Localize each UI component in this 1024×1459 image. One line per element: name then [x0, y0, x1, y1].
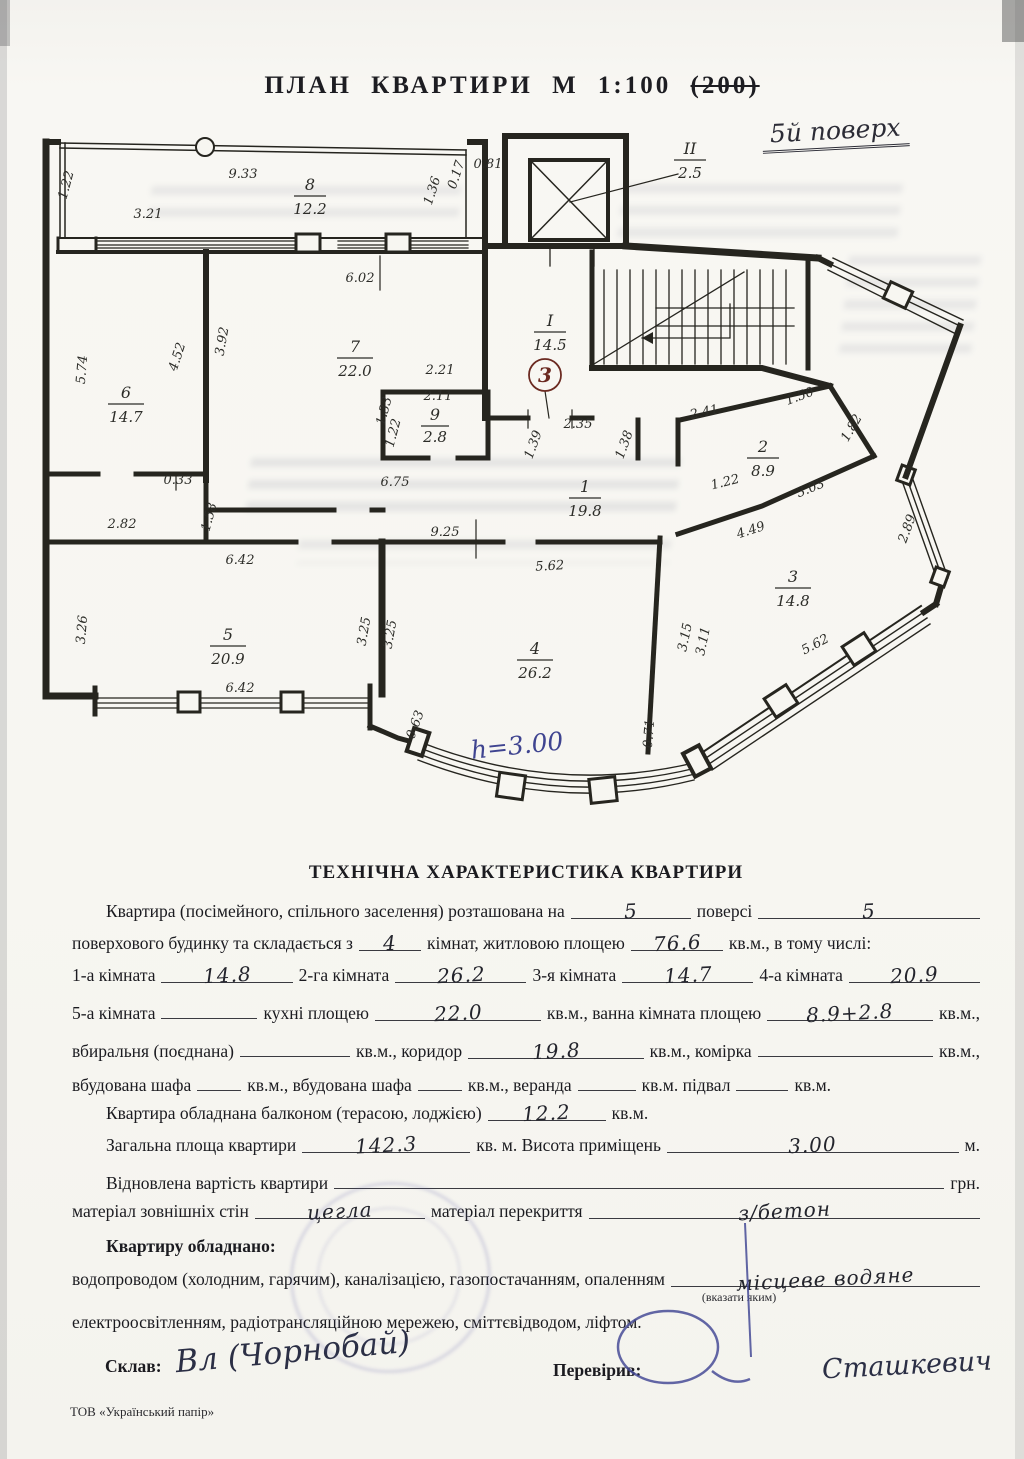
scan-edge-left — [0, 0, 7, 1459]
basement-field — [736, 1070, 788, 1091]
svg-text:I: I — [546, 311, 554, 330]
label: вбиральня (поєднана) — [72, 1041, 234, 1062]
svg-text:3.25: 3.25 — [355, 616, 375, 647]
storeys-field: 5 — [758, 898, 980, 919]
svg-text:9.25: 9.25 — [431, 525, 460, 540]
svg-text:19.8: 19.8 — [568, 502, 601, 520]
stair-label: I 14.5 — [533, 311, 566, 354]
svg-text:1.22: 1.22 — [56, 169, 78, 201]
height-note-handwritten: h=3.00 — [469, 726, 564, 765]
label: кв.м. підвал — [642, 1075, 731, 1096]
handwritten-value: 3.00 — [788, 1132, 838, 1159]
svg-text:2.89: 2.89 — [895, 513, 919, 546]
svg-text:1: 1 — [580, 477, 590, 496]
label: Квартира обладнана балконом (терасою, ло… — [106, 1103, 482, 1124]
handwritten-value: 14.7 — [663, 962, 713, 989]
label: кв.м., — [939, 1003, 980, 1024]
svg-text:2.41: 2.41 — [688, 402, 720, 423]
room-label-8: 8 12.2 — [293, 175, 326, 218]
label: 4-а кімната — [759, 965, 842, 986]
label: кв.м., коридор — [356, 1041, 462, 1062]
made-by-label: Склав: — [105, 1356, 162, 1377]
entrance-number-mark: 3 — [529, 359, 561, 391]
form-line-balcony: Квартира обладнана балконом (терасою, ло… — [72, 1100, 980, 1124]
label: Відновлена вартість квартири — [106, 1173, 328, 1194]
room-label-2: 2 8.9 — [747, 437, 779, 480]
label: м. — [965, 1135, 980, 1156]
balcony-railing — [60, 138, 466, 238]
handwritten-value: 12.2 — [522, 1100, 572, 1127]
svg-text:6: 6 — [121, 383, 131, 402]
svg-text:5.74: 5.74 — [74, 355, 91, 385]
handwritten-value: 8.9+2.8 — [806, 999, 895, 1028]
room4-area-field: 20.9 — [849, 962, 980, 983]
svg-text:3.21: 3.21 — [134, 207, 163, 222]
interior-walls — [46, 252, 874, 752]
label: кімнат, житловою площею — [427, 933, 625, 954]
wc-area-field — [240, 1036, 350, 1057]
svg-text:26.2: 26.2 — [517, 664, 551, 682]
form-line-kitchen-bath: 5-а кімната кухні площею 22.0 кв.м., ван… — [72, 998, 980, 1024]
svg-text:0.81: 0.81 — [474, 157, 503, 172]
label: кв.м., ванна кімната площею — [547, 1003, 761, 1024]
label: поверхового будинку та складається з — [72, 933, 353, 954]
handwritten-value: 76.6 — [652, 930, 702, 957]
ink-stamp-inner-ring — [308, 1198, 470, 1355]
svg-text:12.2: 12.2 — [293, 200, 326, 218]
svg-text:6.42: 6.42 — [226, 681, 255, 696]
svg-text:3: 3 — [538, 363, 552, 387]
label: кв.м., — [939, 1041, 980, 1062]
pen-marks — [520, 1195, 820, 1405]
svg-text:6.75: 6.75 — [381, 475, 410, 490]
paper-vendor-note: ТОВ «Український папір» — [70, 1404, 214, 1420]
svg-text:2.21: 2.21 — [425, 363, 455, 378]
scanned-document-sheet: ПЛАН КВАРТИРИ М 1:100 (200) 5й поверх — [0, 0, 1024, 1459]
label: матеріал зовнішніх стін — [72, 1201, 249, 1222]
room-label-4: 4 26.2 — [517, 639, 553, 682]
svg-text:1.39: 1.39 — [522, 429, 546, 461]
svg-text:7: 7 — [350, 337, 361, 356]
svg-text:22.0: 22.0 — [337, 362, 372, 380]
label: 1-а кімната — [72, 965, 155, 986]
room5-area-field — [161, 998, 257, 1019]
form-line-restored-value: Відновлена вартість квартири грн. — [72, 1168, 980, 1194]
form-line-wc-corridor: вбиральня (поєднана) кв.м., коридор 19.8… — [72, 1036, 980, 1062]
checked-by-signature: Сташкевич — [821, 1346, 992, 1386]
label: кв. м. Висота приміщень — [476, 1135, 661, 1156]
svg-text:2.35: 2.35 — [563, 417, 593, 432]
stairwell — [592, 246, 830, 386]
room-label-6: 6 14.7 — [108, 383, 144, 426]
label: Квартира (посімейного, спільного заселен… — [106, 901, 565, 922]
label: грн. — [950, 1173, 980, 1194]
room-labels: 8 12.2 7 22.0 6 14.7 9 2.8 5 — [108, 139, 811, 765]
svg-text:6.02: 6.02 — [346, 271, 375, 286]
svg-text:2.82: 2.82 — [107, 517, 137, 532]
label: кв.м. — [612, 1103, 649, 1124]
top-window-wall — [58, 234, 485, 290]
svg-text:14.5: 14.5 — [533, 336, 566, 354]
handwritten-value: 20.9 — [890, 962, 940, 989]
kitchen-area-field: 22.0 — [375, 1000, 541, 1021]
label: Загальна площа квартири — [106, 1135, 296, 1156]
closet1-field — [197, 1070, 241, 1091]
svg-text:4: 4 — [529, 639, 540, 658]
room-label-1: 1 19.8 — [568, 477, 601, 520]
label: кв.м., в тому числі: — [729, 933, 871, 954]
svg-text:0.17: 0.17 — [445, 158, 468, 191]
svg-text:3.15: 3.15 — [675, 622, 696, 653]
scan-edge-right — [1015, 0, 1024, 1459]
svg-text:20.9: 20.9 — [210, 650, 245, 668]
svg-text:1.36: 1.36 — [421, 175, 444, 207]
svg-text:2.5: 2.5 — [677, 164, 702, 182]
scan-corner-top-left — [0, 0, 10, 46]
plan-title-struck-scale: (200) — [691, 72, 760, 99]
form-line-total-area: Загальна площа квартири 142.3 кв. м. Вис… — [72, 1132, 980, 1156]
svg-text:9: 9 — [430, 405, 440, 424]
svg-text:5.62: 5.62 — [535, 558, 565, 574]
handwritten-value: 14.8 — [202, 962, 252, 989]
elevator-label: II 2.5 — [674, 139, 706, 182]
svg-text:3.11: 3.11 — [693, 626, 714, 657]
label: кв.м., веранда — [468, 1075, 572, 1096]
svg-text:3.26: 3.26 — [74, 615, 91, 645]
svg-text:0.71: 0.71 — [641, 719, 658, 749]
handwritten-value: 26.2 — [436, 962, 486, 989]
svg-text:1.22: 1.22 — [709, 472, 741, 494]
room1-area-field: 14.8 — [161, 962, 292, 983]
svg-text:9.33: 9.33 — [229, 167, 258, 182]
label: кв.м., вбудована шафа — [247, 1075, 412, 1096]
handwritten-value: 22.0 — [433, 1000, 483, 1027]
room-label-3: 3 14.8 — [775, 567, 811, 610]
svg-text:1.50: 1.50 — [784, 385, 816, 409]
form-heading: ТЕХНІЧНА ХАРАКТЕРИСТИКА КВАРТИРИ — [72, 862, 980, 884]
room-label-9: 9 2.8 — [421, 405, 449, 446]
restored-value-field — [334, 1168, 944, 1189]
form-line-closets: вбудована шафа кв.м., вбудована шафа кв.… — [72, 1070, 980, 1096]
svg-text:1.38: 1.38 — [613, 429, 637, 461]
room-label-7: 7 22.0 — [337, 337, 373, 380]
svg-text:3: 3 — [788, 567, 798, 586]
svg-text:2.8: 2.8 — [422, 428, 447, 446]
handwritten-value: 142.3 — [355, 1131, 418, 1158]
svg-text:3.92: 3.92 — [213, 326, 233, 357]
form-line-rooms-count: поверхового будинку та складається з 4 к… — [72, 930, 980, 954]
svg-text:4.49: 4.49 — [734, 519, 767, 543]
svg-text:3.03: 3.03 — [794, 476, 826, 501]
bathroom-area-field: 8.9+2.8 — [767, 1000, 933, 1021]
floor-field: 5 — [571, 898, 691, 919]
handwritten-value: 19.8 — [531, 1038, 581, 1065]
room3-area-field: 14.7 — [622, 962, 753, 983]
svg-text:5: 5 — [223, 625, 233, 644]
label: кв.м. — [794, 1075, 831, 1096]
handwritten-value: 5 — [623, 899, 638, 924]
total-area-field: 142.3 — [302, 1132, 470, 1153]
handwritten-value: 4 — [383, 931, 398, 956]
svg-text:14.8: 14.8 — [776, 592, 809, 610]
svg-text:8.9: 8.9 — [751, 462, 775, 480]
svg-text:5.62: 5.62 — [799, 631, 832, 658]
svg-text:1.58: 1.58 — [199, 501, 221, 533]
corridor-area-field: 19.8 — [468, 1038, 643, 1059]
storeroom-area-field — [758, 1036, 933, 1057]
page-title: ПЛАН КВАРТИРИ М 1:100 (200) — [0, 72, 1024, 100]
label: кв.м., комірка — [650, 1041, 752, 1062]
rooms-count-field: 4 — [359, 930, 421, 951]
svg-text:4.52: 4.52 — [166, 341, 190, 374]
living-area-field: 76.6 — [631, 930, 723, 951]
form-line-location: Квартира (посімейного, спільного заселен… — [72, 898, 980, 922]
svg-text:2.11: 2.11 — [423, 389, 453, 404]
scan-corner-top-right — [1002, 0, 1024, 42]
svg-text:2: 2 — [757, 437, 768, 456]
room2-area-field: 26.2 — [395, 962, 526, 983]
svg-text:II: II — [683, 139, 697, 158]
svg-text:14.7: 14.7 — [109, 408, 143, 426]
label: 2-га кімната — [299, 965, 390, 986]
right-outer-wall — [818, 258, 963, 604]
ceiling-height-field: 3.00 — [667, 1132, 959, 1153]
plan-title-text: ПЛАН КВАРТИРИ М 1:100 — [264, 72, 671, 99]
label: поверсі — [697, 901, 752, 922]
handwritten-value: 5 — [862, 899, 877, 924]
label: кухні площею — [263, 1003, 369, 1024]
svg-text:8: 8 — [305, 175, 315, 194]
label: вбудована шафа — [72, 1075, 191, 1096]
balcony-area-field: 12.2 — [488, 1100, 606, 1121]
svg-text:6.42: 6.42 — [226, 553, 255, 568]
svg-text:0.33: 0.33 — [164, 473, 193, 488]
bottom-right-window-band — [703, 604, 936, 770]
closet2-field — [418, 1070, 462, 1091]
form-line-room-areas: 1-а кімната 14.8 2-га кімната 26.2 3-я к… — [72, 962, 980, 986]
veranda-field — [578, 1070, 636, 1091]
room-label-5: 5 20.9 — [210, 625, 246, 668]
label: 5-а кімната — [72, 1003, 155, 1024]
floor-plan-drawing: 8 12.2 7 22.0 6 14.7 9 2.8 5 — [38, 128, 988, 843]
label: 3-я кімната — [532, 965, 616, 986]
